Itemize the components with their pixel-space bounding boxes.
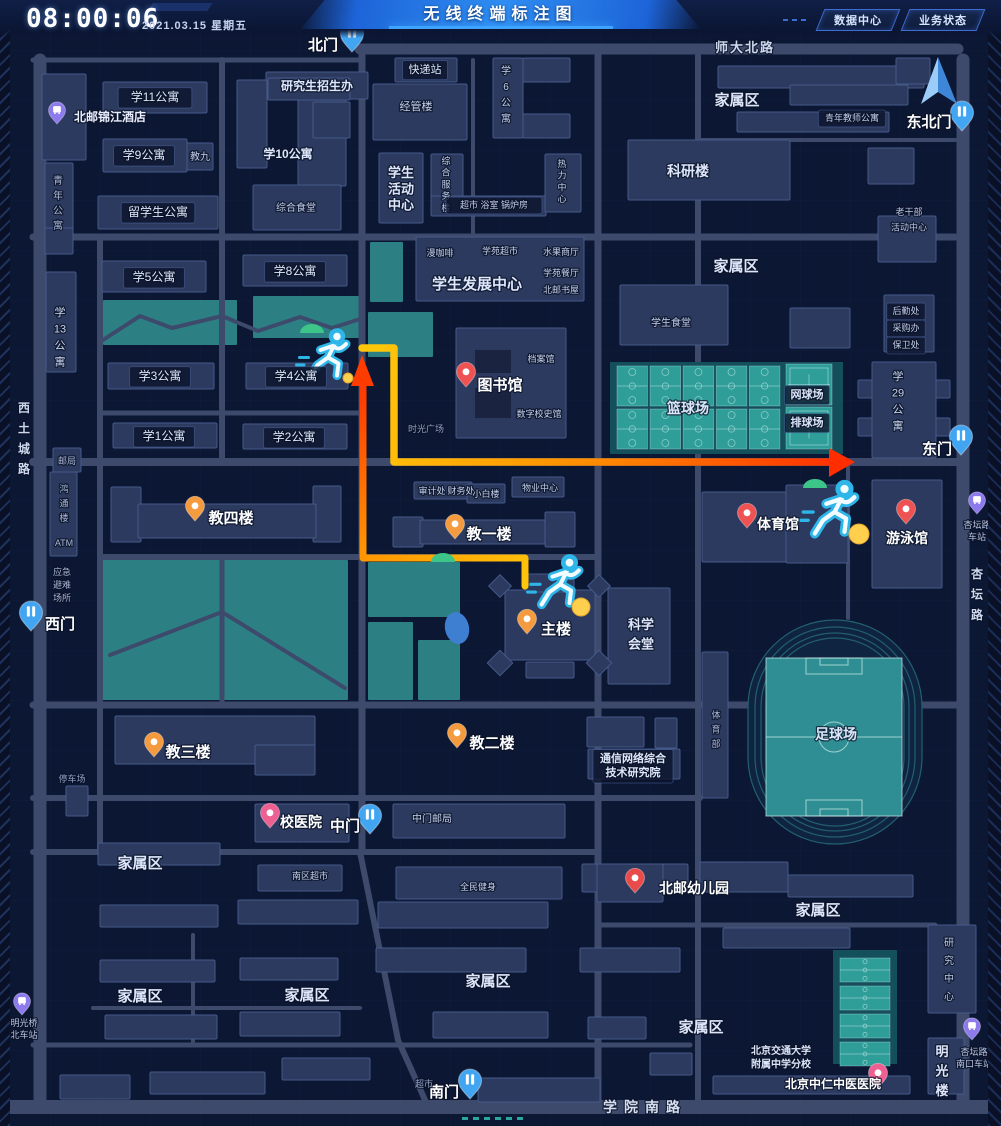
building bbox=[620, 285, 728, 345]
map-label: 主楼 bbox=[541, 620, 571, 638]
map-label-group: 小白楼 bbox=[472, 488, 499, 499]
map-label-group: 学生活动中心 bbox=[388, 165, 414, 213]
bus-wheel bbox=[978, 502, 980, 504]
building bbox=[545, 512, 575, 547]
map-label-group: 科研楼 bbox=[667, 163, 709, 179]
map-label-group: 教四楼 bbox=[207, 509, 253, 527]
building bbox=[60, 1075, 130, 1099]
building bbox=[723, 928, 850, 948]
map-label-group: 综合食堂 bbox=[276, 201, 316, 214]
building bbox=[433, 1012, 548, 1038]
map-label-group: 水果商厅 bbox=[543, 246, 579, 257]
map-label-group: 物业中心 bbox=[522, 482, 558, 493]
gate-glyph bbox=[957, 430, 960, 440]
map-label-group: 体育部 bbox=[711, 709, 720, 749]
map-label: 中门邮局 bbox=[412, 812, 452, 825]
map-label-group: 北邮书屋 bbox=[543, 284, 579, 295]
map-label-group: 财务处 bbox=[447, 485, 474, 496]
map-label: 学10公寓 bbox=[263, 146, 312, 161]
weekday: 星期五 bbox=[211, 20, 247, 32]
data-center-button[interactable]: 数据中心 bbox=[816, 9, 901, 31]
map-label: 停车场 bbox=[58, 773, 85, 784]
building bbox=[868, 148, 914, 184]
map-label: 网球场 bbox=[791, 387, 824, 401]
building bbox=[240, 1012, 340, 1036]
map-label: 快递站 bbox=[409, 62, 442, 76]
map-label-group: 学10公寓 bbox=[263, 146, 312, 161]
clock: 08:00:06 bbox=[26, 4, 159, 34]
lawn bbox=[368, 622, 413, 700]
poi-glyph bbox=[454, 729, 461, 736]
building bbox=[393, 517, 423, 547]
building bbox=[282, 1058, 370, 1080]
map-label: 家属区 bbox=[284, 986, 329, 1004]
poi-glyph bbox=[267, 809, 274, 816]
building bbox=[655, 718, 677, 748]
map-label-group: 家属区 bbox=[117, 987, 162, 1005]
lawn bbox=[368, 562, 460, 617]
map-label-group: 北门 bbox=[308, 36, 338, 54]
map-label-group: 学1公寓 bbox=[134, 427, 195, 447]
map-label-group: 教二楼 bbox=[468, 734, 514, 752]
map-label-group: 明光楼 bbox=[934, 1044, 948, 1098]
map-label: 时光广场 bbox=[408, 423, 444, 434]
building bbox=[313, 102, 350, 138]
map-label: 学苑超市 bbox=[482, 245, 518, 256]
map-label: 学5公寓 bbox=[133, 269, 176, 284]
map-label-group: 中门邮局 bbox=[412, 812, 452, 825]
bottom-dashes-decoration bbox=[517, 1117, 523, 1120]
bus-wheel bbox=[969, 1028, 971, 1030]
map-label-group: 教九 bbox=[190, 150, 210, 163]
basketball-court bbox=[749, 409, 780, 449]
building bbox=[100, 905, 218, 927]
map-label: 后勤处 bbox=[892, 305, 919, 316]
lawn bbox=[370, 242, 403, 302]
map-label: 学3公寓 bbox=[139, 368, 182, 383]
building bbox=[858, 380, 872, 398]
building bbox=[376, 948, 526, 972]
mini-basketball-court bbox=[840, 1042, 890, 1066]
map-label-group: 主楼 bbox=[541, 620, 571, 638]
map-label: 游泳馆 bbox=[886, 530, 928, 546]
map-label: 家属区 bbox=[117, 987, 162, 1005]
map-label: 图书馆 bbox=[477, 376, 522, 394]
map-label: 排球场 bbox=[791, 415, 824, 429]
map-label: 留学生公寓 bbox=[128, 204, 188, 219]
map-label: 体育部 bbox=[711, 709, 720, 749]
building bbox=[238, 900, 358, 924]
bus-glyph bbox=[968, 1022, 976, 1028]
map-label: 教二楼 bbox=[468, 734, 514, 752]
map-label: 鸿通楼 bbox=[59, 483, 68, 523]
poi-glyph bbox=[463, 368, 470, 375]
map-label: 学8公寓 bbox=[274, 263, 317, 278]
map-label: 应急避难场所 bbox=[53, 566, 71, 603]
map-label-group: 体育馆 bbox=[757, 516, 799, 532]
map-label: 教一楼 bbox=[465, 525, 511, 543]
map-label: 学苑餐厅 bbox=[543, 267, 579, 278]
map-label-group: 家属区 bbox=[713, 257, 758, 275]
map-label: 足球场 bbox=[815, 726, 857, 742]
map-label-group: 教三楼 bbox=[164, 743, 210, 761]
building bbox=[378, 902, 548, 928]
signal-dot bbox=[849, 524, 869, 544]
map-label-group: 经管楼 bbox=[400, 99, 433, 113]
map-label: 家属区 bbox=[678, 1018, 723, 1036]
map-label-group: 东门 bbox=[922, 440, 952, 458]
map-label: 学生食堂 bbox=[651, 316, 691, 329]
map-label: 东北门 bbox=[906, 113, 951, 131]
map-label-group: 后勤处 bbox=[887, 303, 926, 320]
nav-buttons: 数据中心 业务状态 bbox=[783, 9, 981, 31]
map-label: 超市 浴室 锅炉房 bbox=[460, 199, 528, 210]
gate-glyph bbox=[958, 106, 961, 116]
gate-glyph bbox=[962, 430, 965, 440]
bus-wheel bbox=[58, 112, 60, 114]
map-label: 物业中心 bbox=[522, 482, 558, 493]
poi-glyph bbox=[452, 520, 459, 527]
map-label-group: 青年教师公寓 bbox=[818, 110, 885, 127]
map-label-group: 审计处 bbox=[418, 485, 445, 496]
bus-glyph bbox=[53, 106, 61, 112]
poi-glyph bbox=[632, 874, 639, 881]
bus-wheel bbox=[23, 1003, 25, 1005]
building bbox=[478, 1078, 600, 1102]
map-label: 水果商厅 bbox=[543, 246, 579, 257]
map-label: 漫咖啡 bbox=[426, 247, 453, 258]
building bbox=[100, 960, 215, 982]
map-label-group: 北京中仁中医医院 bbox=[785, 1076, 881, 1091]
map-label: 研究生招生办 bbox=[281, 78, 353, 93]
basketball-court bbox=[617, 366, 648, 406]
bus-wheel bbox=[54, 112, 56, 114]
gate-glyph bbox=[371, 809, 374, 819]
map-label: 审计处 bbox=[418, 485, 445, 496]
map-label: 学11公寓 bbox=[131, 89, 179, 104]
map-label: 数字校史馆 bbox=[516, 408, 561, 419]
gate-glyph bbox=[963, 106, 966, 116]
map-label-group: 北邮幼儿园 bbox=[659, 880, 729, 896]
building bbox=[105, 1015, 217, 1039]
bottom-dashes-decoration bbox=[506, 1117, 512, 1120]
map-label-group: 应急避难场所 bbox=[53, 566, 71, 603]
building bbox=[587, 717, 644, 747]
map-label: 学生发展中心 bbox=[432, 275, 522, 293]
building bbox=[896, 58, 930, 84]
map-label-group: 超市 bbox=[415, 1078, 433, 1089]
map-label-group: 师大北路 bbox=[715, 40, 775, 55]
building-inner bbox=[475, 350, 511, 373]
map-label: 校医院 bbox=[280, 814, 322, 830]
map-label-group: 家属区 bbox=[795, 901, 840, 919]
campus-map: 北门东北门东门西门中门南门师大北路西土城路杏坛路学院南路杏坛路车站杏坛路南口车站… bbox=[0, 0, 1001, 1126]
map-label-group: 南门 bbox=[429, 1083, 459, 1101]
basketball-court bbox=[716, 409, 747, 449]
map-label: 北邮幼儿园 bbox=[659, 880, 729, 896]
map-label: 科研楼 bbox=[667, 163, 709, 179]
nav-dots-decoration bbox=[783, 19, 809, 21]
page-title: 无线终端标注图 bbox=[423, 0, 577, 29]
building bbox=[788, 875, 913, 897]
basketball-court bbox=[716, 366, 747, 406]
poi-glyph bbox=[903, 505, 910, 512]
map-label-group: 通信网络综合技术研究院 bbox=[593, 749, 673, 783]
runner-head bbox=[563, 556, 575, 568]
signal-dot bbox=[343, 373, 353, 383]
basketball-court bbox=[617, 409, 648, 449]
map-label-group: 全民健身 bbox=[460, 881, 496, 892]
map-label: 超市 bbox=[415, 1078, 433, 1089]
map-label: 体育馆 bbox=[757, 516, 799, 532]
map-label: 明光楼 bbox=[934, 1044, 948, 1098]
map-label-group: 学11公寓 bbox=[118, 88, 192, 108]
map-label-group: 快递站 bbox=[403, 60, 448, 79]
map-label: 全民健身 bbox=[460, 881, 496, 892]
map-label-group: 校医院 bbox=[280, 814, 322, 830]
map-label-group: 学2公寓 bbox=[264, 428, 325, 448]
map-label: ATM bbox=[55, 538, 73, 548]
building bbox=[523, 58, 570, 82]
map-label: 家属区 bbox=[465, 972, 510, 990]
map-label: 家属区 bbox=[713, 257, 758, 275]
map-label: 综合食堂 bbox=[276, 201, 316, 214]
map-label: 家属区 bbox=[714, 91, 759, 109]
building bbox=[66, 786, 88, 816]
map-label: 通信网络综合技术研究院 bbox=[600, 751, 667, 779]
map-label-group: 学3公寓 bbox=[130, 367, 191, 387]
map-label-group: 学苑超市 bbox=[482, 245, 518, 256]
map-label-group: 游泳馆 bbox=[886, 530, 928, 546]
poi-glyph bbox=[192, 502, 199, 509]
bus-glyph bbox=[18, 997, 26, 1003]
map-label: 学1公寓 bbox=[143, 428, 186, 443]
map-label: 小白楼 bbox=[472, 488, 499, 499]
map-label-group: 漫咖啡 bbox=[426, 247, 453, 258]
map-label-group: 留学生公寓 bbox=[121, 203, 195, 223]
date: 2021.03.15 星期五 bbox=[142, 17, 247, 33]
bus-glyph bbox=[973, 496, 981, 502]
bus-wheel bbox=[973, 1028, 975, 1030]
lawn bbox=[103, 300, 237, 345]
building bbox=[650, 1053, 692, 1075]
map-label-group: 家属区 bbox=[678, 1018, 723, 1036]
building bbox=[790, 308, 850, 348]
map-label: 南门 bbox=[429, 1083, 459, 1101]
map-label: 家属区 bbox=[117, 854, 162, 872]
mini-basketball-court bbox=[840, 958, 890, 982]
building bbox=[628, 140, 790, 200]
gate-glyph bbox=[366, 809, 369, 819]
map-label-group: 鸿通楼 bbox=[59, 483, 68, 523]
map-label-group: 家属区 bbox=[284, 986, 329, 1004]
map-label-group: ATM bbox=[55, 538, 73, 548]
map-label-group: 采购办 bbox=[887, 320, 926, 337]
map-label: 教四楼 bbox=[207, 509, 253, 527]
mini-basketball-court bbox=[840, 1014, 890, 1038]
map-label-group: 家属区 bbox=[465, 972, 510, 990]
map-label: 教九 bbox=[190, 150, 210, 163]
map-label-group: 学5公寓 bbox=[124, 268, 185, 288]
map-label: 采购办 bbox=[892, 322, 919, 333]
map-label-group: 时光广场 bbox=[408, 423, 444, 434]
map-label-group: 教一楼 bbox=[465, 525, 511, 543]
map-label-group: 排球场 bbox=[785, 413, 830, 432]
runner-head bbox=[838, 482, 851, 495]
map-label: 学9公寓 bbox=[123, 147, 166, 162]
map-label-group: 邮局 bbox=[58, 455, 76, 466]
map-label: 北邮书屋 bbox=[543, 284, 579, 295]
map-label-group: 学院南路 bbox=[603, 1099, 687, 1115]
mini-basketball-court bbox=[840, 986, 890, 1010]
map-label-group: 中门 bbox=[330, 817, 360, 835]
building bbox=[526, 662, 574, 678]
poi-glyph bbox=[151, 738, 158, 745]
building bbox=[790, 85, 908, 105]
top-bar: 08:00:06 2021.03.15 星期五 无线终端标注图 数据中心 业务状… bbox=[0, 0, 1001, 38]
map-label-group: 东北门 bbox=[906, 113, 951, 131]
map-label-group: 保卫处 bbox=[887, 337, 926, 354]
map-label: 杏坛路 bbox=[970, 566, 984, 622]
bus-wheel bbox=[974, 502, 976, 504]
map-label-group: 数字校史馆 bbox=[516, 408, 561, 419]
building bbox=[523, 114, 570, 138]
map-label-group: 北邮锦江酒店 bbox=[74, 109, 146, 124]
map-label-group: 学生食堂 bbox=[651, 316, 691, 329]
signal-dot bbox=[572, 598, 590, 616]
map-label: 家属区 bbox=[795, 901, 840, 919]
building bbox=[240, 958, 338, 980]
building bbox=[858, 418, 872, 436]
map-label: 篮球场 bbox=[666, 400, 709, 416]
lawn bbox=[418, 640, 460, 700]
map-label-group: 档案馆 bbox=[527, 353, 554, 364]
map-label: 学2公寓 bbox=[273, 429, 316, 444]
map-label: 北门 bbox=[308, 36, 338, 54]
map-label: 青年教师公寓 bbox=[825, 112, 879, 123]
title-banner: 无线终端标注图 bbox=[301, 0, 701, 29]
map-label-group: 超市 浴室 锅炉房 bbox=[446, 197, 542, 214]
map-label-group: 家属区 bbox=[714, 91, 759, 109]
map-label: 邮局 bbox=[58, 455, 76, 466]
runner-head bbox=[331, 331, 343, 343]
date-value: 2021.03.15 bbox=[142, 20, 207, 32]
map-label-group: 西门 bbox=[45, 615, 75, 633]
map-label-group: 网球场 bbox=[785, 385, 830, 404]
bottom-dashes-decoration bbox=[495, 1117, 501, 1120]
map-label-group: 学生发展中心 bbox=[432, 275, 522, 293]
poi-glyph bbox=[744, 509, 751, 516]
map-label-group: 学8公寓 bbox=[265, 262, 326, 282]
gate-glyph bbox=[471, 1074, 474, 1084]
map-label-group: 停车场 bbox=[58, 773, 85, 784]
map-label: 东门 bbox=[922, 440, 952, 458]
map-label-group: 足球场 bbox=[815, 726, 857, 742]
building bbox=[111, 487, 141, 542]
bottom-dashes-decoration bbox=[484, 1117, 490, 1120]
building bbox=[150, 1072, 265, 1094]
building bbox=[936, 418, 950, 436]
building bbox=[255, 745, 315, 775]
map-label: 财务处 bbox=[447, 485, 474, 496]
basketball-court bbox=[749, 366, 780, 406]
map-label-group: 图书馆 bbox=[477, 376, 522, 394]
building bbox=[588, 1017, 646, 1039]
map-label: 南区超市 bbox=[292, 870, 328, 881]
map-label-group: 学苑餐厅 bbox=[543, 267, 579, 278]
map-label-group: 南区超市 bbox=[292, 870, 328, 881]
building bbox=[936, 380, 950, 398]
gate-glyph bbox=[32, 606, 35, 616]
map-label: 学4公寓 bbox=[275, 368, 318, 383]
map-label: 档案馆 bbox=[527, 353, 554, 364]
map-label: 中门 bbox=[330, 817, 360, 835]
map-label: 学院南路 bbox=[603, 1099, 687, 1115]
building bbox=[313, 486, 341, 542]
gate-glyph bbox=[27, 606, 30, 616]
map-label-group: 研究生招生办 bbox=[281, 78, 353, 93]
map-label-group: 学4公寓 bbox=[266, 367, 327, 387]
map-label: 西门 bbox=[45, 615, 75, 633]
map-label: 师大北路 bbox=[715, 40, 775, 55]
map-label: 北京中仁中医医院 bbox=[785, 1076, 881, 1091]
map-label-group: 杏坛路 bbox=[970, 566, 984, 622]
map-label: 经管楼 bbox=[400, 99, 433, 113]
poi-glyph bbox=[875, 1069, 882, 1076]
map-label-group: 篮球场 bbox=[666, 400, 709, 416]
map-label: 学生活动中心 bbox=[388, 165, 414, 213]
poi-glyph bbox=[524, 615, 531, 622]
bottom-dashes-decoration bbox=[462, 1117, 468, 1120]
map-label: 保卫处 bbox=[892, 339, 919, 350]
map-label-group: 家属区 bbox=[117, 854, 162, 872]
map-label: 北邮锦江酒店 bbox=[74, 109, 146, 124]
business-status-button[interactable]: 业务状态 bbox=[901, 9, 986, 31]
bottom-dashes-decoration bbox=[473, 1117, 479, 1120]
map-label: 教三楼 bbox=[164, 743, 210, 761]
building bbox=[580, 948, 680, 972]
map-label-group: 学9公寓 bbox=[114, 146, 175, 166]
gate-glyph bbox=[466, 1074, 469, 1084]
bus-wheel bbox=[19, 1003, 21, 1005]
